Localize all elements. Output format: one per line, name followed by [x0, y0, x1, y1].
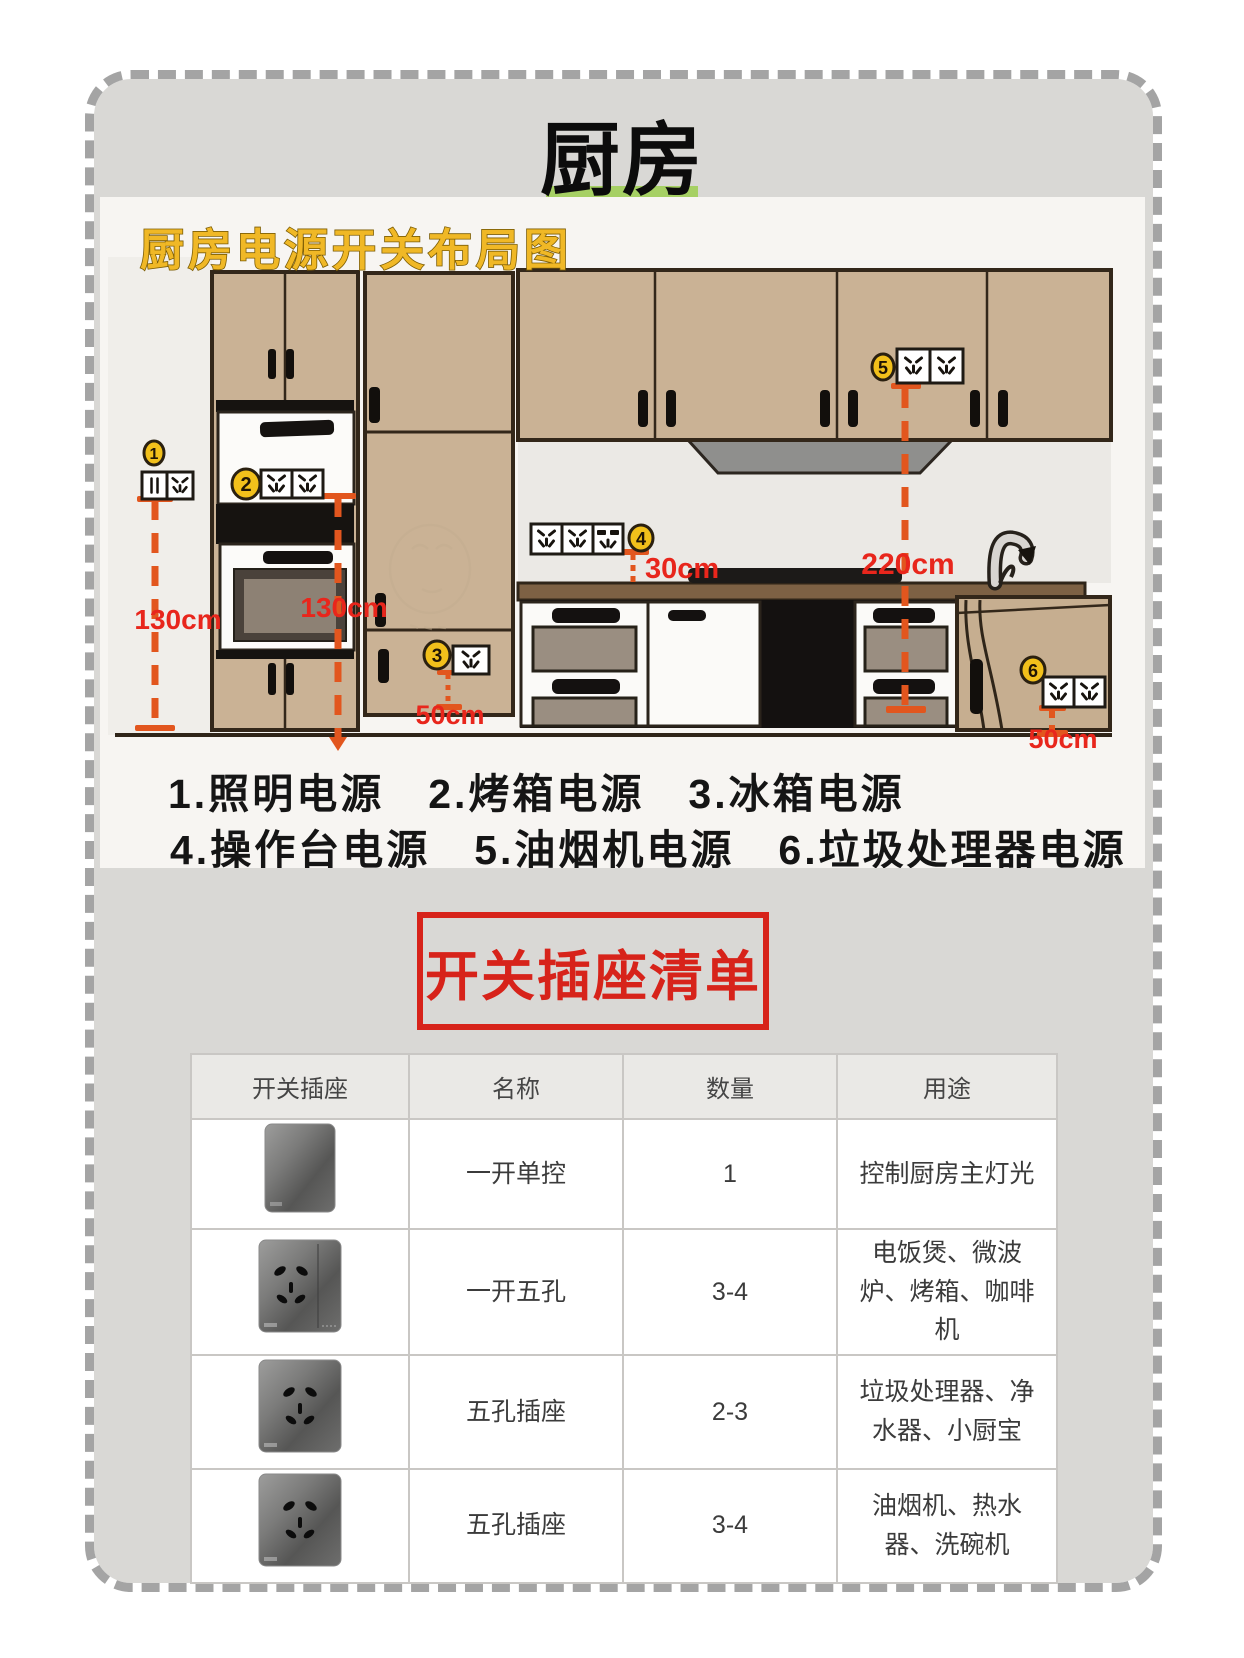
wall-cabinets — [518, 270, 1111, 440]
page-title: 厨房 — [0, 96, 1244, 212]
table-row: 一开五孔 3-4 电饭煲、微波炉、烤箱、咖啡机 — [191, 1229, 1057, 1355]
svg-text:1: 1 — [150, 446, 159, 463]
measure-220cm: 220cm — [861, 548, 954, 581]
switch-socket-table: 开关插座 名称 数量 用途 一开单控 1 控制厨房主灯光 — [190, 1053, 1056, 1584]
measure-130cm-mid: 130cm — [300, 592, 387, 623]
header-switch-socket: 开关插座 — [191, 1054, 409, 1119]
outlet-6-double-socket — [1043, 677, 1105, 707]
svg-text:3: 3 — [432, 646, 443, 667]
svg-text:2: 2 — [240, 474, 251, 496]
table-row: 五孔插座 2-3 垃圾处理器、净水器、小厨宝 — [191, 1355, 1057, 1469]
header-qty: 数量 — [623, 1054, 837, 1119]
measure-130cm-left: 130cm — [134, 604, 221, 635]
badge-1: 1 — [144, 441, 164, 465]
header-name: 名称 — [409, 1054, 623, 1119]
legend-line-1: 1.照明电源 2.烤箱电源 3.冰箱电源 — [168, 771, 905, 817]
badge-2: 2 — [232, 469, 260, 499]
row-qty: 2-3 — [623, 1355, 837, 1469]
badge-4: 4 — [629, 525, 653, 551]
row-use: 油烟机、热水器、洗碗机 — [837, 1469, 1057, 1583]
outlet-2-double-socket — [261, 470, 323, 498]
switch-plate-image — [191, 1119, 409, 1229]
table-row: 一开单控 1 控制厨房主灯光 — [191, 1119, 1057, 1229]
row-qty: 3-4 — [623, 1469, 837, 1583]
row-use: 电饭煲、微波炉、烤箱、咖啡机 — [837, 1229, 1057, 1355]
badge-3: 3 — [424, 641, 450, 669]
outlet-3-socket — [453, 646, 489, 674]
outlet-4-triple-socket — [531, 524, 623, 554]
row-qty: 1 — [623, 1119, 837, 1229]
page: 厨房 — [0, 0, 1244, 1658]
row-use: 垃圾处理器、净水器、小厨宝 — [837, 1355, 1057, 1469]
svg-text:4: 4 — [636, 529, 646, 549]
svg-text:6: 6 — [1028, 661, 1038, 681]
base-drawer-unit-left — [521, 602, 648, 726]
row-name: 五孔插座 — [409, 1469, 623, 1583]
measure-50cm-fridge: 50cm — [415, 700, 484, 730]
legend-line-2: 4.操作台电源 5.油烟机电源 6.垃圾处理器电源 — [170, 827, 1127, 868]
diagram-heading: 厨房电源开关布局图 — [140, 226, 572, 275]
socket-plate-image — [191, 1355, 409, 1469]
measure-30cm: 30cm — [645, 553, 719, 585]
row-name: 一开单控 — [409, 1119, 623, 1229]
base-door-unit — [648, 602, 760, 726]
badge-6: 6 — [1021, 657, 1045, 683]
svg-text:5: 5 — [878, 358, 888, 378]
row-name: 一开五孔 — [409, 1229, 623, 1355]
row-name: 五孔插座 — [409, 1355, 623, 1469]
outlet-1-switch-socket — [142, 472, 193, 499]
list-title: 开关插座清单 — [425, 932, 761, 1011]
kitchen-layout-diagram: 130cm 130cm 50cm 30cm 220cm 50cm — [100, 197, 1145, 868]
measure-50cm-right: 50cm — [1028, 724, 1097, 754]
row-use: 控制厨房主灯光 — [837, 1119, 1057, 1229]
badge-5: 5 — [872, 354, 894, 380]
header-use: 用途 — [837, 1054, 1057, 1119]
table-header-row: 开关插座 名称 数量 用途 — [191, 1054, 1057, 1119]
socket-plate-image — [191, 1469, 409, 1583]
table-row: 五孔插座 3-4 油烟机、热水器、洗碗机 — [191, 1469, 1057, 1583]
row-qty: 3-4 — [623, 1229, 837, 1355]
range-hood — [688, 440, 952, 473]
switch-socket-plate-image — [191, 1229, 409, 1355]
outlet-5-double-socket — [897, 349, 963, 383]
list-title-box: 开关插座清单 — [417, 912, 769, 1030]
